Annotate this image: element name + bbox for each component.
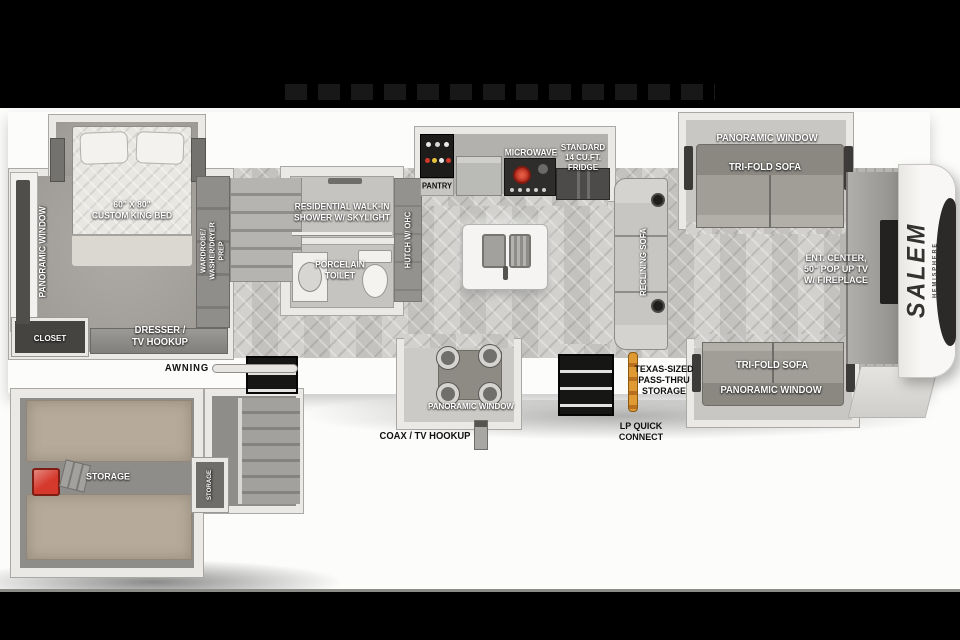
bottom-letterbox-band xyxy=(0,592,960,640)
entry-steps-front xyxy=(246,356,298,394)
pantry-shelf-items-2 xyxy=(425,158,430,163)
cooktop-knobs xyxy=(510,188,514,192)
tri-fold-sofa-top xyxy=(696,144,844,228)
burner-red xyxy=(513,166,531,184)
pillow-left xyxy=(79,131,128,165)
shower-label: RESIDENTIAL WALK-IN SHOWER W/ SKYLIGHT xyxy=(294,201,390,222)
pantry-label: PANTRY xyxy=(422,181,452,190)
island-faucet xyxy=(503,266,508,280)
awning-sprocket-teeth xyxy=(285,84,715,100)
pantry-cabinet xyxy=(420,134,454,178)
brand-logo: SALEM HEMISPHERE xyxy=(903,222,940,318)
coax-label: COAX / TV HOOKUP xyxy=(380,431,471,443)
dresser-label: DRESSER / TV HOOKUP xyxy=(132,325,188,349)
nightstand-left xyxy=(50,138,65,182)
shower-glass-track xyxy=(292,232,392,235)
awning-label: AWNING xyxy=(165,363,209,375)
awning-rail xyxy=(212,364,298,373)
bedroom-window-glass xyxy=(16,180,30,324)
dinette-chair-1 xyxy=(437,347,459,369)
living-bottom-window-label: PANORAMIC WINDOW xyxy=(720,385,821,397)
storage-platform-bottom xyxy=(26,494,192,560)
ent-center-label: ENT. CENTER, 50" POP UP TV W/ FIREPLACE xyxy=(804,253,868,287)
garage-storage-label: STORAGE xyxy=(86,471,130,482)
toilet-label: PORCELAIN TOILET xyxy=(315,259,365,280)
fridge-label: STANDARD 14 CU.FT. FRIDGE xyxy=(561,142,605,172)
storage-platform-top xyxy=(26,400,192,462)
dinette-chair-2 xyxy=(479,345,501,367)
living-bottom-sofa-label: TRI-FOLD SOFA xyxy=(736,360,808,372)
fridge xyxy=(556,168,610,200)
window-slot-left-top xyxy=(684,146,693,190)
generator-red-box xyxy=(32,468,60,496)
dinette-patch xyxy=(404,334,514,348)
cupholder-bottom xyxy=(651,299,665,313)
cupholder-top xyxy=(651,193,665,207)
bedroom-window-label: PANORAMIC WINDOW xyxy=(38,206,49,297)
pillow-right xyxy=(135,131,184,165)
reclining-sofa-label: RECLINING SOFA xyxy=(638,228,648,296)
top-letterbox-band xyxy=(0,0,960,108)
garage-storage-small-label: STORAGE xyxy=(206,470,214,500)
island-drainboard xyxy=(509,234,531,268)
coax-connector xyxy=(474,420,488,450)
dinette-window-label: PANORAMIC WINDOW xyxy=(428,401,514,411)
floorplan-canvas: SALEM HEMISPHERE PANORAMIC WINDOW 60" X … xyxy=(0,0,960,640)
pantry-shelf-items-1 xyxy=(426,142,431,147)
hutch-label: HUTCH W/ OHC xyxy=(403,212,412,268)
shower-fixture xyxy=(328,178,362,184)
bed-label: 60" X 80" CUSTOM KING BED xyxy=(92,199,172,220)
garage-stairs xyxy=(238,398,300,504)
microwave-label: MICROWAVE xyxy=(505,148,557,159)
island-sink-basin xyxy=(482,234,506,268)
brand-name: SALEM xyxy=(903,222,933,318)
brand-sub: HEMISPHERE xyxy=(932,222,939,318)
living-top-window-label: PANORAMIC WINDOW xyxy=(716,133,817,145)
entry-steps-mid xyxy=(558,354,614,416)
closet-label: CLOSET xyxy=(34,333,66,343)
lp-connect-label: LP QUICK CONNECT xyxy=(619,421,663,443)
living-top-sofa-label: TRI-FOLD SOFA xyxy=(729,162,801,174)
bed-blanket xyxy=(72,234,192,266)
pass-thru-label: TEXAS-SIZED PASS-THRU STORAGE xyxy=(634,364,693,398)
burner-small xyxy=(538,164,548,174)
oven xyxy=(456,156,502,196)
wardrobe-label: WARDROBE/ WASHER/DRYER PREP xyxy=(200,222,227,279)
